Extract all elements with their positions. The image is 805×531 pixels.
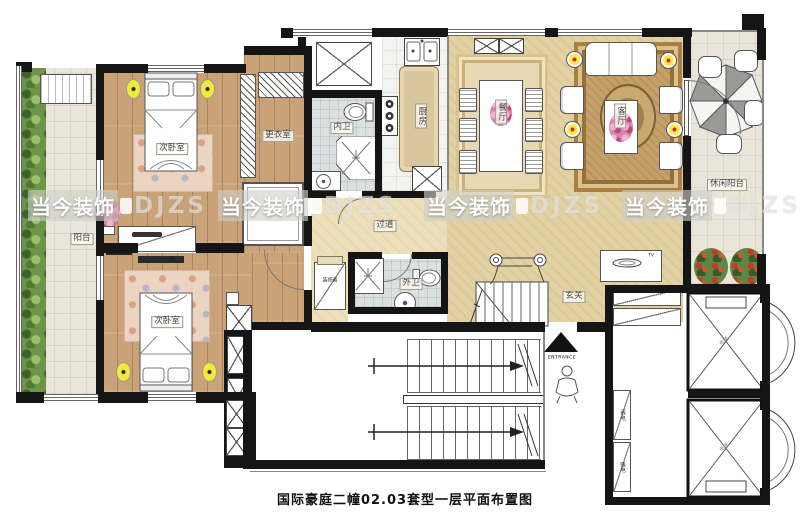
console-dish-icon: [612, 258, 642, 268]
basin-icon: [316, 174, 331, 189]
room-label-corridor: 过道: [373, 220, 396, 232]
wall-segment: [762, 285, 770, 505]
wardrobe-hatch: [258, 72, 304, 98]
bay-window-box: [474, 38, 499, 54]
wall-segment: [348, 307, 448, 314]
exterior-line: [250, 471, 546, 472]
window: [96, 160, 104, 216]
side-table-icon: [660, 52, 677, 69]
patio-chair-icon: [744, 100, 764, 126]
internal-staircase-icon: [468, 244, 556, 328]
window: [16, 66, 22, 396]
railing: [692, 30, 758, 32]
bay-window-box: [499, 38, 524, 54]
window: [293, 29, 372, 36]
wall-segment: [104, 243, 138, 253]
dining-chair-icon: [525, 150, 543, 174]
wall-segment: [281, 28, 293, 38]
wall-segment: [372, 28, 448, 37]
patio-chair-icon: [698, 56, 722, 78]
nightstand-lamp-icon: [202, 362, 217, 382]
dresser-dish-icon: [132, 232, 162, 237]
entrance-text: ENTRANCE: [548, 356, 576, 361]
room-label-dining: 餐厅: [495, 100, 507, 125]
double-bed-icon: [138, 292, 194, 392]
room-label-balcony: 阳台: [70, 233, 93, 245]
door-leaf: [684, 80, 689, 136]
wall-segment: [96, 216, 104, 256]
sofa-icon: [585, 42, 657, 76]
light-well: [316, 42, 372, 86]
room-label-inner-bath: 内卫: [330, 122, 353, 134]
room-label-living: 客厅: [614, 104, 626, 129]
window: [448, 29, 545, 36]
window: [148, 394, 196, 401]
stair-direction-arrows: [360, 342, 546, 460]
side-table-icon: [666, 121, 683, 138]
wall-segment: [96, 300, 104, 396]
shower-icon: [352, 258, 384, 294]
wall-segment: [441, 252, 448, 314]
picture-frame-icon: [317, 256, 343, 265]
stove-icon: [381, 96, 398, 136]
wall-segment: [304, 90, 382, 98]
window: [148, 65, 204, 72]
elevator-icon: [686, 395, 804, 501]
room-label-bedroom1: 次卧室: [156, 143, 188, 155]
room-label-kitchen: 厨房: [415, 104, 427, 129]
shower-icon: [336, 136, 376, 180]
wall-segment: [196, 243, 244, 253]
weak-current-label: 弱电: [618, 410, 626, 421]
window: [44, 394, 98, 401]
nightstand-lamp-icon: [116, 362, 131, 382]
dining-table: [479, 80, 523, 172]
room-label-outer-bath: 外卫: [399, 278, 422, 290]
wall-segment: [447, 322, 545, 332]
wall-segment: [204, 64, 246, 73]
armchair-icon: [659, 86, 683, 114]
wall-segment: [683, 136, 691, 232]
person-icon: [550, 364, 584, 404]
wall-segment: [304, 46, 312, 194]
wall-segment: [757, 28, 766, 60]
wall-segment: [98, 392, 148, 403]
patio-chair-icon: [734, 50, 758, 72]
wall-segment: [311, 322, 447, 332]
nightstand-lamp-icon: [126, 79, 141, 99]
armchair-icon: [560, 86, 584, 114]
armchair-icon: [560, 142, 584, 170]
dining-chair-icon: [525, 118, 543, 142]
partition-line: [447, 36, 449, 191]
kitchen-sink-icon: [404, 38, 440, 66]
wall-segment: [252, 322, 312, 330]
decor-console-label: 装饰画: [322, 277, 337, 284]
toilet-icon: [342, 101, 374, 123]
window: [96, 256, 104, 300]
room-label-dressing: 更衣室: [262, 130, 294, 142]
wall-segment: [16, 392, 44, 403]
room-label-foyer: 玄关: [562, 291, 585, 303]
window: [558, 29, 642, 36]
planter-icon: [694, 248, 728, 286]
wall-segment: [375, 90, 382, 198]
wall-segment: [96, 64, 104, 160]
dining-chair-icon: [459, 118, 477, 142]
wall-segment: [605, 285, 613, 497]
strong-current-label: 强电: [618, 462, 626, 473]
console-table: [314, 262, 346, 310]
tv-text: TV: [169, 258, 175, 263]
dining-chair-icon: [525, 88, 543, 112]
wall-segment: [757, 254, 766, 286]
entrance-arrow-icon: [544, 332, 578, 352]
wall-segment: [382, 191, 436, 198]
wall-segment: [683, 28, 691, 78]
wall-segment: [304, 191, 336, 198]
room-label-bedroom2: 次卧室: [151, 316, 183, 328]
drawing-title: 国际豪庭二幢02.03套型一层平面布置图: [277, 489, 533, 508]
side-table-icon: [564, 121, 581, 138]
wardrobe-hatch: [240, 74, 256, 178]
duct-box: [412, 166, 442, 192]
elevator-icon: [686, 289, 804, 393]
tv-text: TV: [648, 254, 654, 259]
side-table-icon: [566, 51, 583, 68]
plants-icon: [20, 68, 46, 394]
room-label-leisure-balcony: 休闲阳台: [707, 179, 747, 191]
wall-segment: [348, 252, 382, 259]
wall-segment: [304, 216, 312, 246]
laundry-unit: [40, 74, 92, 104]
wall-segment: [243, 460, 545, 469]
floor-plan: TV: [0, 0, 805, 531]
wall-segment: [244, 46, 306, 55]
wardrobe-cabinet: [242, 182, 304, 246]
wall-segment: [545, 28, 558, 37]
tv-unit: [138, 256, 184, 263]
wall-segment: [688, 390, 762, 398]
dining-chair-icon: [459, 88, 477, 112]
wall-segment: [298, 37, 306, 46]
nightstand-lamp-icon: [200, 79, 215, 99]
wall-segment: [348, 259, 355, 314]
patio-chair-icon: [716, 134, 742, 154]
dining-chair-icon: [459, 150, 477, 174]
wall-segment: [362, 191, 382, 198]
railing: [762, 60, 764, 256]
wall-segment: [683, 232, 691, 286]
wall-segment: [243, 330, 252, 468]
armchair-icon: [659, 142, 683, 170]
double-bed-icon: [144, 72, 198, 172]
small-cabinet: [226, 292, 239, 305]
wall-segment: [605, 497, 770, 505]
wall-segment: [577, 322, 608, 332]
shoe-cabinet: [613, 308, 681, 326]
wall-segment: [605, 285, 770, 293]
